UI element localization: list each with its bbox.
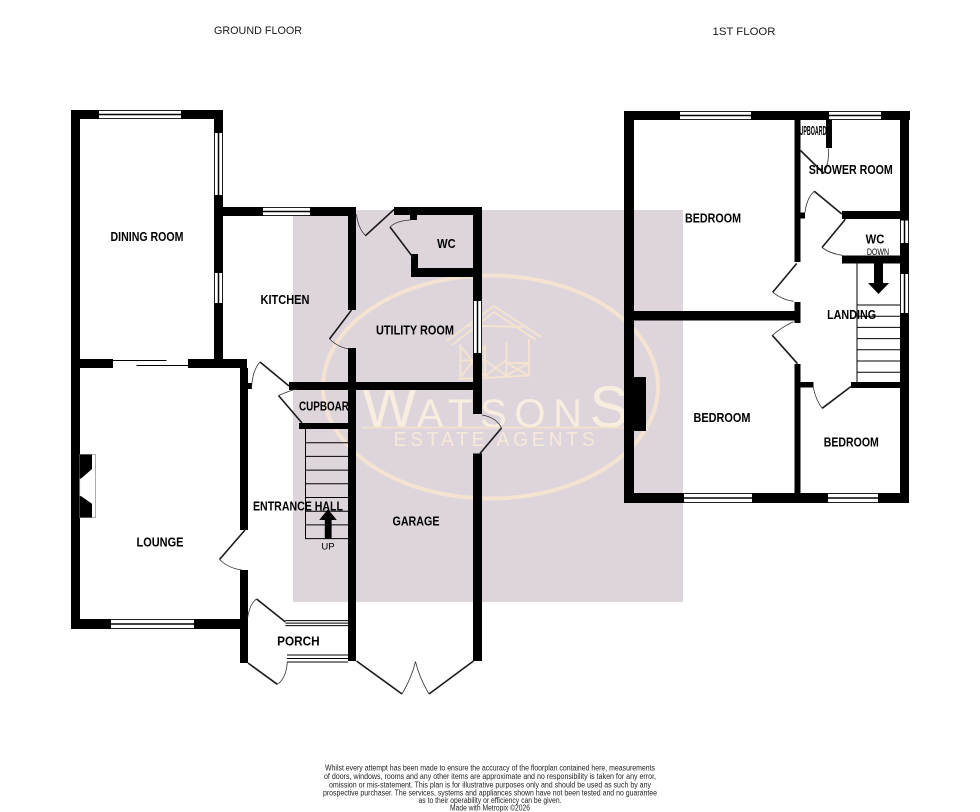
svg-text:BEDROOM: BEDROOM <box>685 211 741 226</box>
svg-text:SHOWER ROOM: SHOWER ROOM <box>809 162 893 177</box>
svg-text:BEDROOM: BEDROOM <box>824 435 879 450</box>
svg-text:UPBOARD: UPBOARD <box>800 123 827 138</box>
svg-text:LOUNGE: LOUNGE <box>137 534 184 549</box>
svg-text:1ST FLOOR: 1ST FLOOR <box>713 26 776 38</box>
svg-text:BEDROOM: BEDROOM <box>694 410 751 425</box>
svg-text:Made with Metropix ©2026: Made with Metropix ©2026 <box>450 804 530 812</box>
svg-text:WC: WC <box>437 236 456 251</box>
svg-text:LANDING: LANDING <box>827 307 876 322</box>
svg-text:CUPBOARD: CUPBOARD <box>299 399 356 414</box>
svg-text:PORCH: PORCH <box>277 634 320 649</box>
svg-text:DINING ROOM: DINING ROOM <box>111 229 184 244</box>
svg-text:KITCHEN: KITCHEN <box>261 292 310 307</box>
svg-text:WC: WC <box>866 231 885 246</box>
svg-text:UP: UP <box>321 542 334 553</box>
svg-text:ENTRANCE HALL: ENTRANCE HALL <box>253 499 343 514</box>
svg-text:GROUND FLOOR: GROUND FLOOR <box>214 25 302 37</box>
svg-text:DOWN: DOWN <box>867 247 889 258</box>
svg-text:UTILITY ROOM: UTILITY ROOM <box>376 323 454 338</box>
svg-text:ESTATE AGENTS: ESTATE AGENTS <box>394 429 599 451</box>
svg-text:GARAGE: GARAGE <box>393 513 440 528</box>
